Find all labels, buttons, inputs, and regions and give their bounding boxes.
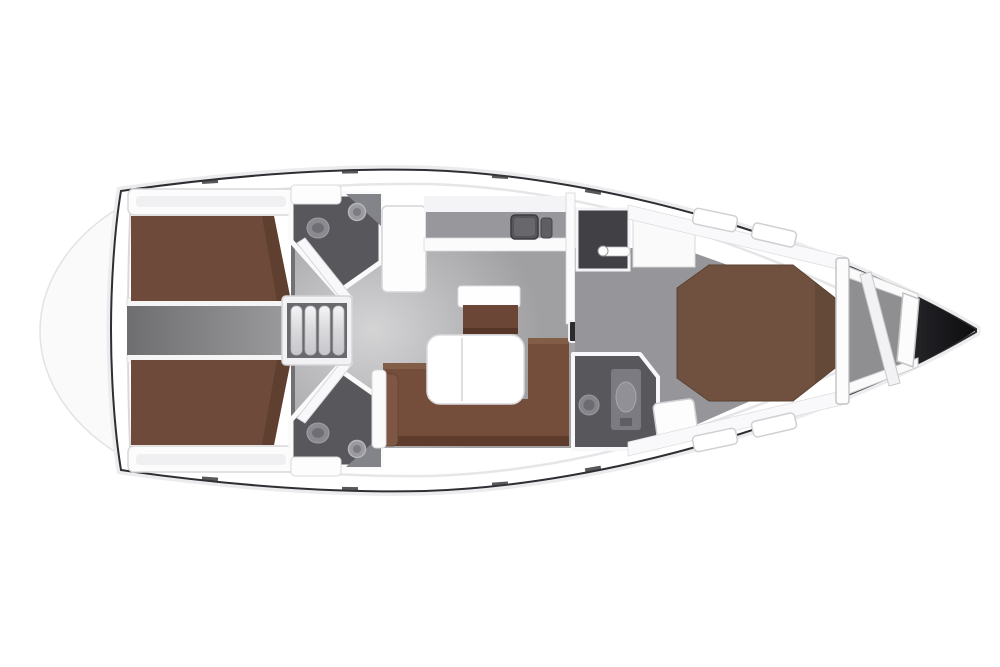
bow-section	[843, 264, 976, 397]
stair-step	[305, 306, 316, 355]
side-cabinet-strip	[372, 370, 386, 448]
stair-step	[291, 306, 302, 355]
salon-sofa-left-highlight	[383, 363, 428, 369]
toilet-seat-icon	[312, 428, 324, 438]
aft-locker-port-inner	[136, 196, 286, 207]
wardrobe-rail-knob	[598, 246, 608, 256]
forward-wardrobe	[577, 209, 629, 270]
yacht-floor-plan-canvas	[0, 0, 1000, 667]
stair-step	[319, 306, 330, 355]
deck-cleat	[342, 487, 358, 491]
aft-head-starboard-shelf	[291, 457, 341, 476]
galley-front-band	[424, 238, 572, 251]
sink-icon	[616, 382, 636, 412]
salon-sofa-shade	[383, 436, 569, 446]
toilet-seat-icon	[584, 400, 595, 411]
deck-cleat	[342, 170, 358, 174]
salon-sofa-back-highlight	[528, 338, 569, 344]
sink-basin-icon	[353, 208, 361, 216]
yacht-floor-plan	[0, 0, 1000, 667]
aft-head-port-shelf	[291, 185, 341, 204]
aft-locker-starboard-inner	[136, 454, 286, 465]
v-berth-bed	[677, 265, 839, 401]
salon-bench-seat-shade	[463, 328, 518, 334]
galley-cabinet	[382, 206, 426, 292]
galley-sink-basin	[514, 218, 535, 236]
galley-deck-band	[424, 196, 572, 213]
salon-bulkhead	[566, 193, 575, 324]
stair-step	[333, 306, 344, 355]
aft-corridor	[127, 306, 293, 355]
salon-bench-top	[458, 286, 520, 307]
sink-basin-icon	[353, 445, 361, 453]
bow-bulkhead-aft	[836, 258, 849, 404]
salon-table	[427, 335, 524, 404]
galley-sink-small	[541, 218, 552, 238]
faucet-icon	[620, 418, 632, 426]
toilet-seat-icon	[312, 223, 324, 233]
